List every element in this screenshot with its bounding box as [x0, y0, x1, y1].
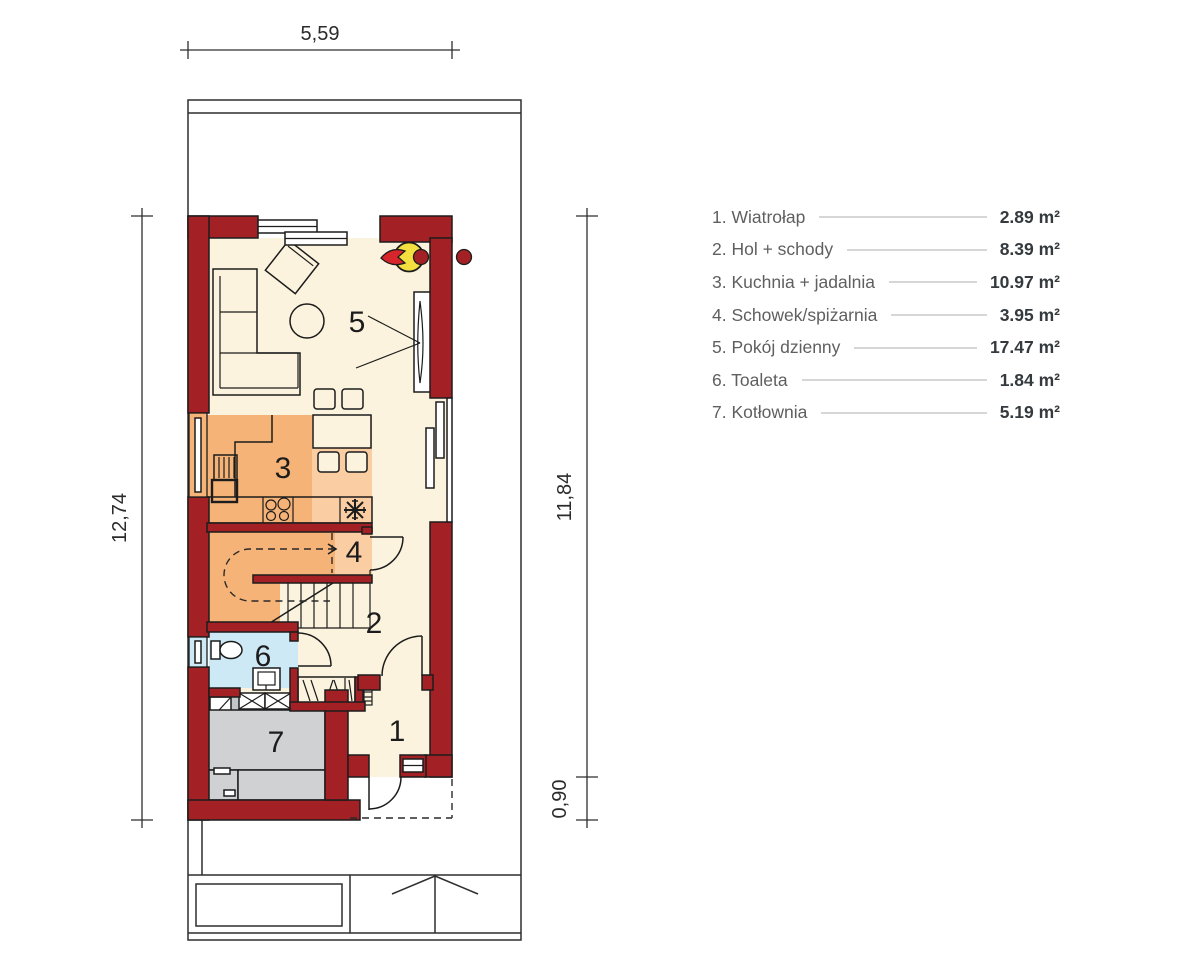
wc-bowl: [220, 642, 242, 659]
legend-room-area: 5.19 m²: [1000, 402, 1060, 423]
legend-leader-line: [819, 216, 986, 218]
legend-room-area: 8.39 m²: [1000, 239, 1060, 260]
dimension-left-label: 12,74: [109, 493, 131, 543]
pantry-floor: [207, 530, 335, 577]
wall-kitchen-pantry: [207, 523, 372, 532]
wall-right-upper: [430, 238, 452, 398]
legend-leader-line: [891, 314, 986, 316]
boiler-unit-wide: [238, 770, 325, 800]
wall-niche-bottom: [290, 702, 365, 711]
legend-row: 6. Toaleta 1.84 m²: [712, 364, 1060, 397]
wall-stair-beam: [253, 575, 372, 583]
legend-room-area: 3.95 m²: [1000, 305, 1060, 326]
chimney-dot: [457, 250, 472, 265]
wall-bottom: [188, 800, 360, 820]
legend-row: 3. Kuchnia + jadalnia 10.97 m²: [712, 266, 1060, 299]
legend-room-area: 17.47 m²: [990, 337, 1060, 358]
room-number-hall: 2: [366, 607, 383, 640]
legend-room-area: 2.89 m²: [1000, 207, 1060, 228]
legend-room-label: 3. Kuchnia + jadalnia: [712, 272, 875, 293]
legend-room-label: 4. Schowek/spiżarnia: [712, 305, 877, 326]
legend-room-area: 1.84 m²: [1000, 370, 1060, 391]
window-entrance-side: [403, 759, 423, 772]
wall-left-upper: [188, 216, 209, 413]
wall-entrance-left: [348, 755, 369, 777]
dimension-width-label: 5,59: [301, 23, 340, 45]
dining-table: [313, 415, 371, 448]
legend-room-label: 1. Wiatrołap: [712, 207, 805, 228]
dimension-right-label: 11,84: [554, 473, 576, 522]
legend-row: 1. Wiatrołap 2.89 m²: [712, 201, 1060, 234]
dimension-porch-label: 0,90: [549, 780, 571, 819]
room-number-pantry: 4: [346, 536, 363, 569]
window-living-2: [285, 232, 347, 245]
chair: [346, 452, 367, 472]
coffee-table: [290, 304, 324, 338]
door-entrance: [369, 777, 401, 810]
legend-leader-line: [854, 347, 977, 349]
stair-landing-floor: [207, 577, 280, 628]
legend-leader-line: [821, 412, 986, 414]
fridge-snowflake-icon: [344, 499, 366, 520]
legend-room-label: 6. Toaleta: [712, 370, 788, 391]
room-number-kitchen: 3: [275, 452, 292, 485]
wall-toilet-door-stub: [290, 632, 298, 641]
legend-room-label: 5. Pokój dzienny: [712, 337, 840, 358]
kitchen-floor: [207, 415, 312, 530]
legend-leader-line: [847, 249, 987, 251]
wall-hall-entry-right: [422, 675, 433, 690]
chair: [318, 452, 339, 472]
room-number-toilet: 6: [255, 640, 272, 673]
wall-left-lower: [188, 667, 209, 820]
room-number-boiler: 7: [268, 726, 285, 759]
parking-space: [196, 884, 342, 926]
wall-hall-entry-left: [358, 675, 380, 690]
wall-corner-bottom-right: [425, 755, 452, 777]
legend-leader-line: [889, 281, 977, 283]
chair: [342, 389, 363, 409]
legend-row: 5. Pokój dzienny 17.47 m²: [712, 331, 1060, 364]
wall-left-middle: [188, 497, 209, 637]
wall-toilet-top: [207, 622, 298, 632]
dimension-right: 11,84 0,90: [549, 208, 598, 828]
legend-row: 4. Schowek/spiżarnia 3.95 m²: [712, 299, 1060, 332]
dimension-left: 12,74: [109, 208, 153, 828]
legend-room-area: 10.97 m²: [990, 272, 1060, 293]
room-number-living: 5: [349, 306, 366, 339]
legend-row: 7. Kotłownia 5.19 m²: [712, 397, 1060, 430]
window-toilet: [189, 637, 207, 667]
wc-tank: [211, 641, 220, 659]
floor-plan: 5 3 4 2 6 1 7 5,59 12,74 11,84 0,90: [0, 0, 1200, 975]
legend-room-label: 2. Hol + schody: [712, 239, 833, 260]
porch-outline-dashed: [350, 779, 452, 818]
legend-room-label: 7. Kotłownia: [712, 402, 807, 423]
legend-row: 2. Hol + schody 8.39 m²: [712, 234, 1060, 267]
boiler-unit: [208, 710, 325, 770]
wall-right-lower: [430, 522, 452, 777]
window-kitchen: [189, 413, 207, 497]
dimension-top: 5,59: [180, 23, 460, 59]
room-number-vestibule: 1: [389, 715, 406, 748]
legend-leader-line: [802, 379, 987, 381]
wall-pantry-stub: [362, 527, 372, 534]
wall-toilet-bottom: [209, 688, 240, 697]
flue-dot: [414, 250, 429, 265]
room-legend: 1. Wiatrołap 2.89 m² 2. Hol + schody 8.3…: [712, 201, 1060, 429]
window-living-1: [258, 220, 317, 233]
chair: [314, 389, 335, 409]
